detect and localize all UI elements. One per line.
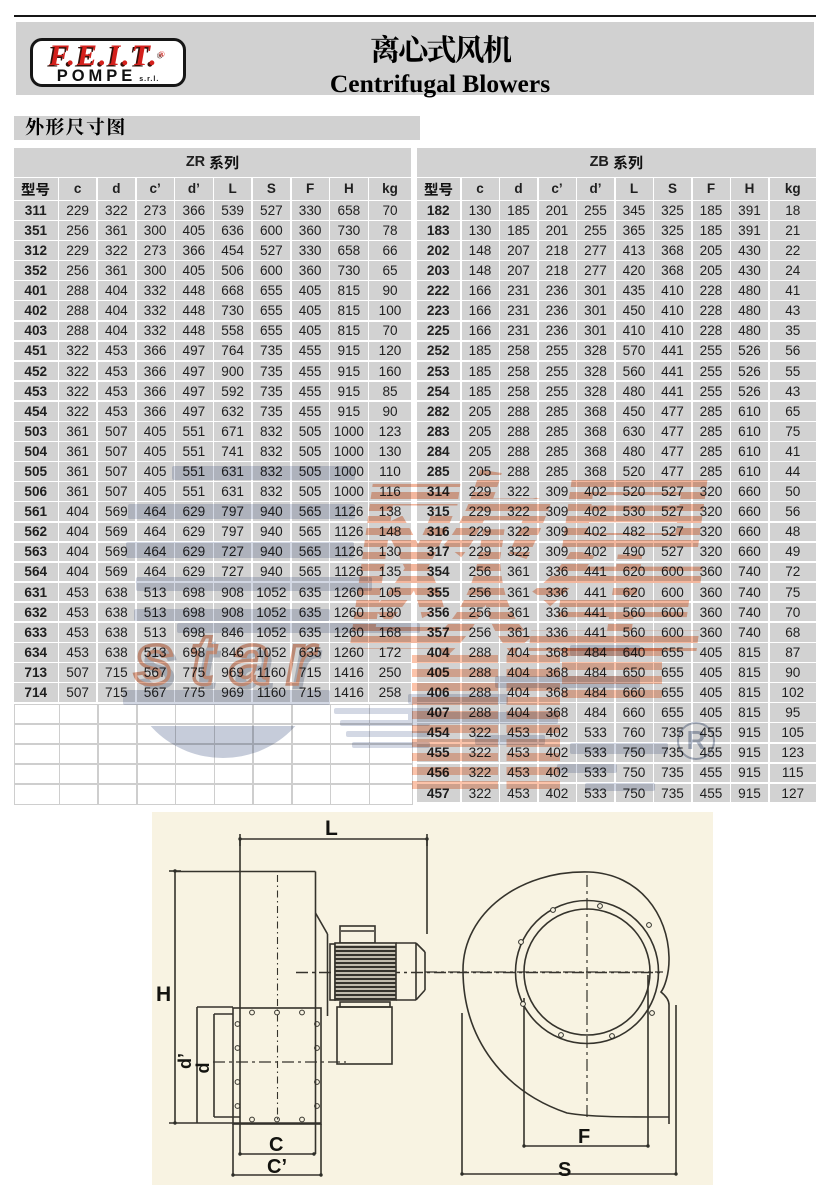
svg-text:S: S — [558, 1159, 571, 1181]
svg-text:d: d — [193, 1063, 213, 1074]
svg-text:L: L — [325, 817, 338, 840]
svg-text:F: F — [578, 1126, 590, 1148]
svg-text:H: H — [156, 983, 171, 1006]
svg-text:C’: C’ — [267, 1156, 287, 1178]
svg-text:C: C — [269, 1134, 283, 1156]
svg-text:d’: d’ — [175, 1053, 195, 1069]
